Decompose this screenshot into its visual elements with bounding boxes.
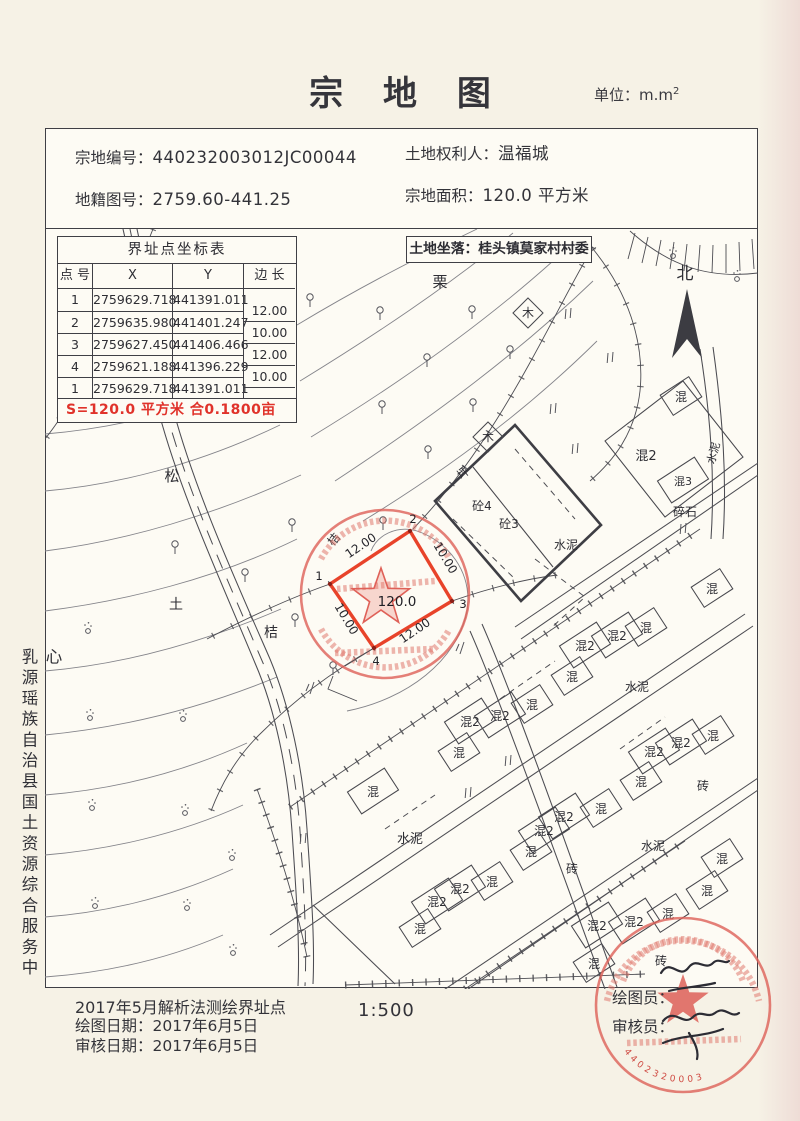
parcel-map-document: 宗 地 图 单位：m.m2 宗地编号：440232003012JC00044 土…: [0, 0, 800, 1121]
map-scale: 1:500: [358, 1000, 415, 1021]
map-label: 混: [595, 802, 607, 816]
coordinate-table-title: 界址点坐标表: [58, 237, 296, 264]
tuft-symbol: [456, 642, 464, 654]
area-label: 宗地面积：: [405, 187, 483, 205]
map-label: 土: [169, 597, 183, 613]
unit-text: 单位：m.m: [594, 86, 673, 104]
coord-cell: 441406.466: [172, 333, 243, 355]
shrub-symbol: [88, 799, 96, 810]
area-value: 120.0 平方米: [483, 186, 589, 205]
coord-cell: 2: [58, 311, 92, 333]
coord-cell: 2759627.450: [92, 333, 172, 355]
map-label: 水泥: [704, 441, 722, 466]
map-label: 砼3: [499, 517, 519, 531]
parcel-corner-number: 4: [372, 654, 379, 668]
shrub-symbol: [91, 897, 99, 908]
owner-field: 土地权利人：温福城: [405, 140, 549, 164]
grass-symbol: [565, 308, 571, 319]
land-location-box: 土地坐落：桂头镇莫家村村委: [406, 236, 592, 263]
map-label: 混2: [575, 639, 595, 653]
column-header-x: X: [92, 264, 172, 288]
map-label: 混: [701, 884, 713, 898]
map-label: 混: [526, 698, 538, 712]
map-label: 水泥: [397, 832, 423, 847]
stamp-number: 4402320003: [622, 1047, 707, 1085]
map-label: 混: [635, 775, 647, 789]
tree-symbol: [172, 541, 178, 554]
map-label: 混3: [674, 475, 692, 488]
shrub-symbol: [228, 849, 236, 860]
coord-cell: 441401.247: [172, 311, 243, 333]
map-label: 混2: [607, 629, 627, 643]
column-header-y: Y: [172, 264, 243, 288]
parcel-corner-dot: [328, 582, 332, 586]
cadastral-number-field: 地籍图号：2759.60-441.25: [75, 188, 291, 210]
grass-symbol: [550, 403, 556, 414]
parcel-corner-number: 3: [459, 597, 466, 611]
review-date-field: 审核日期：2017年6月5日: [75, 1034, 258, 1056]
parcel-corner-number: 1: [315, 569, 322, 583]
coord-cell: 4: [58, 355, 92, 377]
north-label: 北: [677, 264, 694, 284]
shrub-symbol: [733, 270, 741, 281]
map-label: 砖: [566, 861, 578, 876]
tree-symbol: [292, 614, 298, 627]
north-arrow-glyph: [672, 289, 702, 358]
parcel-edge-length: 10.00: [332, 601, 362, 638]
north-arrow: 北: [672, 264, 702, 358]
coord-cell: 1: [58, 377, 92, 399]
shrub-symbol: [179, 710, 187, 721]
coordinate-table-body: 12759629.718441391.01122759635.980441401…: [58, 289, 243, 399]
shrub-symbol: [183, 899, 191, 910]
map-label: 混: [706, 582, 718, 596]
owner-label: 土地权利人：: [405, 145, 498, 163]
review-date-label: 审核日期：: [75, 1037, 153, 1055]
parcel-corner-dot: [450, 599, 454, 603]
tree-symbol: [289, 519, 295, 532]
map-label: 混2: [534, 824, 554, 838]
owner-value: 温福城: [498, 144, 549, 163]
parcel-number-field: 宗地编号：440232003012JC00044: [75, 146, 357, 168]
coord-cell: 3: [58, 333, 92, 355]
map-label: 混: [675, 390, 687, 404]
coordinate-table-header: 点 号 X Y: [58, 264, 243, 289]
map-label: 混: [525, 845, 537, 859]
coord-cell: 2759621.188: [92, 355, 172, 377]
column-header-point: 点 号: [58, 264, 92, 288]
tree-symbol: [307, 294, 313, 307]
tree-symbol: [469, 306, 475, 319]
parcel-edge-length: 12.00: [397, 615, 433, 646]
map-label: 混: [566, 670, 578, 684]
cadastral-number-value: 2759.60-441.25: [153, 190, 292, 209]
coord-cell: 441391.011: [172, 289, 243, 311]
map-label: 混2: [671, 736, 691, 750]
parcel-corner-dot: [372, 646, 376, 650]
map-label: 混: [414, 922, 426, 936]
coordinate-table: 界址点坐标表 点 号 X Y 12759629.718441391.011227…: [57, 236, 297, 423]
map-label: 混2: [427, 895, 447, 909]
shrub-symbol: [86, 709, 94, 720]
grass-symbol: [680, 523, 686, 534]
grass-symbol: [572, 443, 578, 454]
grass-symbol: [465, 787, 471, 798]
shrub-symbol: [181, 804, 189, 815]
coord-cell: 1: [58, 289, 92, 311]
map-label: 砼4: [472, 499, 492, 513]
map-label: 栗: [432, 273, 447, 291]
map-label: 松: [164, 467, 179, 485]
map-label: 混: [453, 746, 465, 760]
parcel-corner-dot: [408, 529, 412, 533]
grass-symbol: [505, 755, 511, 766]
parcel-number-value: 440232003012JC00044: [153, 148, 357, 167]
shrub-symbol: [84, 622, 92, 633]
map-label: 水泥: [641, 839, 665, 853]
map-label: 水泥: [625, 680, 649, 694]
map-label: 桔: [264, 625, 278, 641]
grass-symbol: [607, 352, 613, 363]
map-label: 混2: [635, 449, 656, 464]
map-label: 碎石: [673, 504, 697, 519]
draw-date-label: 绘图日期：: [75, 1017, 153, 1035]
edge-length-cell: 10.00: [244, 366, 295, 388]
unit-exponent: 2: [673, 86, 679, 97]
tree-symbol: [425, 446, 431, 459]
review-date-value: 2017年6月5日: [153, 1037, 259, 1055]
parcel-number-label: 宗地编号：: [75, 149, 153, 167]
edge-length-cell: 12.00: [244, 300, 295, 322]
tree-symbol: [330, 662, 336, 675]
drafter-label: 绘图员：: [612, 986, 674, 1008]
map-label: 混: [367, 785, 379, 799]
tree-symbol: [379, 401, 385, 414]
map-label: 水泥: [554, 538, 578, 552]
tree-symbol: [377, 307, 383, 320]
map-label: 木: [482, 430, 494, 444]
parcel-corner-number: 2: [409, 512, 416, 526]
parcel-area-text: 120.0: [378, 594, 417, 610]
edge-length-cell: 10.00: [244, 322, 295, 344]
draw-date-field: 绘图日期：2017年6月5日: [75, 1014, 258, 1036]
organization-name: 乳源瑶族自治县国土资源综合服务中心: [16, 648, 64, 996]
coord-cell: 2759629.718: [92, 377, 172, 399]
map-label: 砖: [697, 778, 709, 793]
unit-label: 单位：m.m2: [594, 84, 679, 105]
coord-cell: 2759629.718: [92, 289, 172, 311]
map-label: 混2: [450, 882, 470, 896]
tree-symbol: [470, 399, 476, 412]
map-label: 混: [486, 875, 498, 889]
map-label: 木: [522, 306, 534, 320]
page-title: 宗 地 图: [0, 66, 800, 115]
tree-symbol: [424, 354, 430, 367]
shrub-symbol: [229, 944, 237, 955]
map-label: 混: [640, 621, 652, 635]
map-label: 混: [707, 729, 719, 743]
coord-cell: 2759635.980: [92, 311, 172, 333]
tree-symbol: [242, 569, 248, 582]
map-label: 混: [716, 852, 728, 866]
cadastral-number-label: 地籍图号：: [75, 191, 153, 209]
reviewer-label: 审核员：: [612, 1015, 674, 1037]
area-note: S=120.0 平方米 合0.1800亩: [58, 398, 296, 422]
map-label: 混2: [554, 810, 574, 824]
column-header-edge: 边 长: [244, 264, 295, 289]
edge-length-cell: 12.00: [244, 344, 295, 366]
draw-date-value: 2017年6月5日: [153, 1017, 259, 1035]
edge-length-column: 12.0010.0012.0010.00: [244, 289, 295, 388]
coord-cell: 441391.011: [172, 377, 243, 399]
grass-symbol: [300, 833, 306, 844]
map-label: 混2: [460, 715, 480, 729]
area-field: 宗地面积：120.0 平方米: [405, 182, 589, 206]
coord-cell: 441396.229: [172, 355, 243, 377]
